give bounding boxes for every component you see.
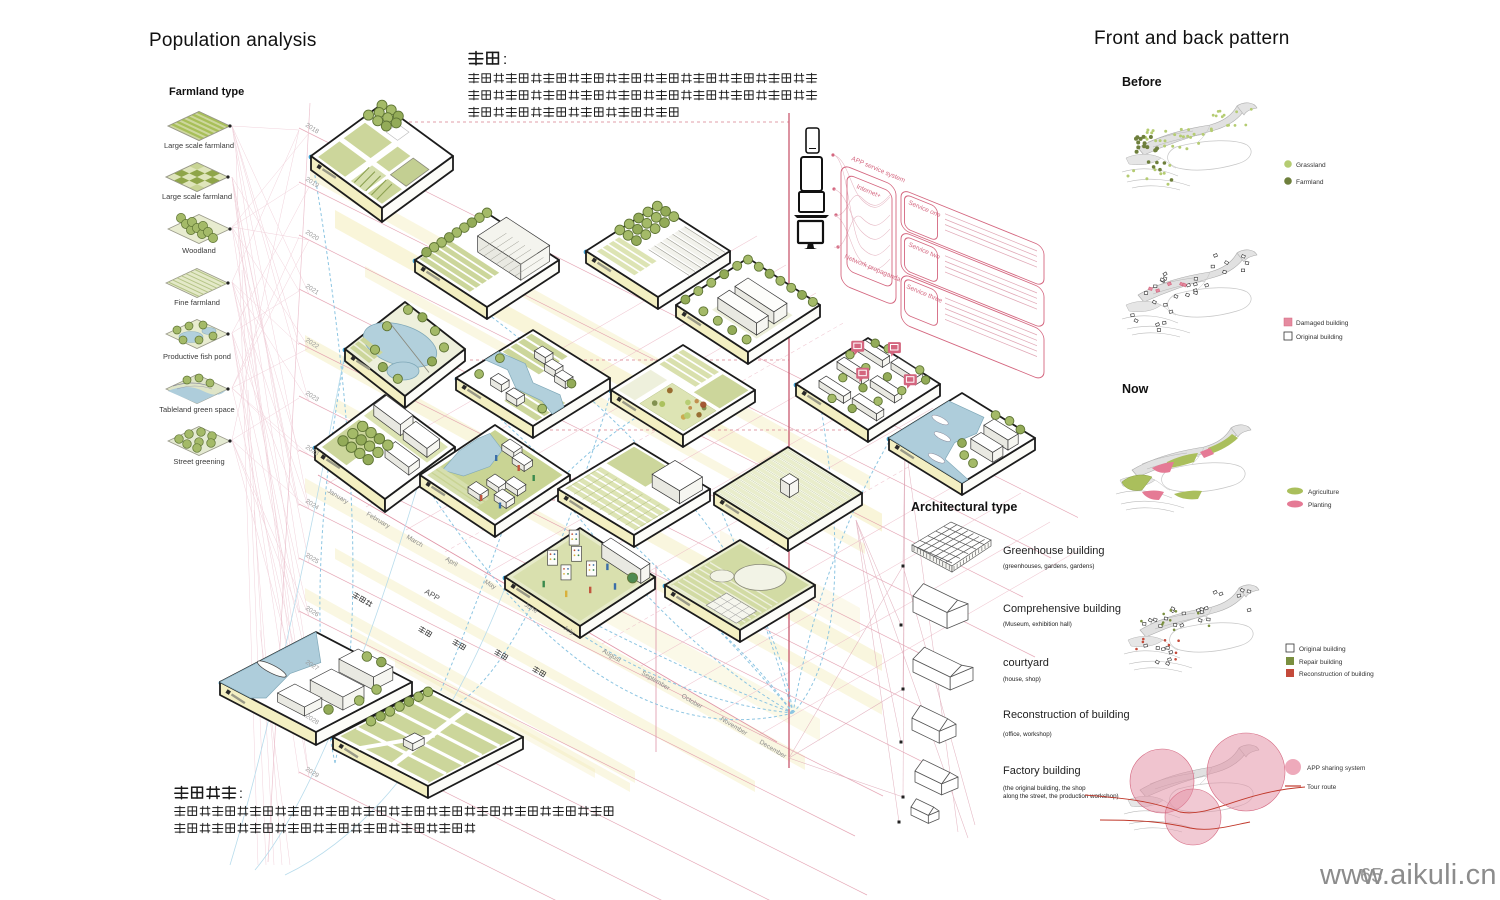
svg-text:(office, workshop): (office, workshop)	[1003, 731, 1052, 738]
svg-text::: :	[239, 785, 243, 801]
svg-text:www.aikuli.cn: www.aikuli.cn	[1319, 859, 1497, 891]
svg-text:Large scale farmland: Large scale farmland	[162, 192, 232, 201]
svg-text:Tableland green space: Tableland green space	[159, 405, 234, 414]
svg-text:Agriculture: Agriculture	[1308, 489, 1339, 496]
svg-text:Farmland type: Farmland type	[169, 86, 244, 98]
svg-text:(house, shop): (house, shop)	[1003, 676, 1041, 683]
svg-text:Fine farmland: Fine farmland	[174, 298, 220, 307]
svg-text:Greenhouse building: Greenhouse building	[1003, 545, 1105, 557]
svg-text:Original building: Original building	[1296, 334, 1343, 341]
svg-text:Architectural type: Architectural type	[911, 500, 1017, 514]
svg-text:Tour route: Tour route	[1307, 784, 1337, 791]
svg-text:Before: Before	[1122, 75, 1162, 89]
svg-text:Front and back pattern: Front and back pattern	[1094, 28, 1290, 49]
svg-text:Street greening: Street greening	[173, 457, 224, 466]
svg-text:courtyard: courtyard	[1003, 657, 1049, 669]
svg-text:Large scale farmland: Large scale farmland	[164, 141, 234, 150]
svg-text:Woodland: Woodland	[182, 246, 216, 255]
svg-text:Comprehensive building: Comprehensive building	[1003, 603, 1121, 615]
svg-text:(Museum, exhibition hall): (Museum, exhibition hall)	[1003, 621, 1072, 628]
svg-text:Reconstruction of building: Reconstruction of building	[1299, 671, 1374, 678]
svg-text:Now: Now	[1122, 382, 1149, 396]
svg-text:Reconstruction of building: Reconstruction of building	[1003, 709, 1130, 721]
svg-text:Original building: Original building	[1299, 646, 1346, 653]
svg-text:Damaged building: Damaged building	[1296, 320, 1349, 327]
svg-text:(the original building, the sh: (the original building, the shop	[1003, 785, 1086, 792]
svg-text:Farmland: Farmland	[1296, 179, 1324, 186]
svg-text:Repair building: Repair building	[1299, 659, 1343, 666]
svg-text:Productive fish pond: Productive fish pond	[163, 352, 231, 361]
svg-text::: :	[503, 51, 507, 68]
svg-text:Planting: Planting	[1308, 502, 1332, 509]
svg-text:Grassland: Grassland	[1296, 162, 1326, 169]
svg-text:Factory building: Factory building	[1003, 765, 1081, 777]
svg-text:APP sharing system: APP sharing system	[1307, 765, 1365, 772]
svg-text:Population analysis: Population analysis	[149, 30, 317, 51]
svg-text:(greenhouses, gardens, gardens: (greenhouses, gardens, gardens)	[1003, 563, 1095, 570]
